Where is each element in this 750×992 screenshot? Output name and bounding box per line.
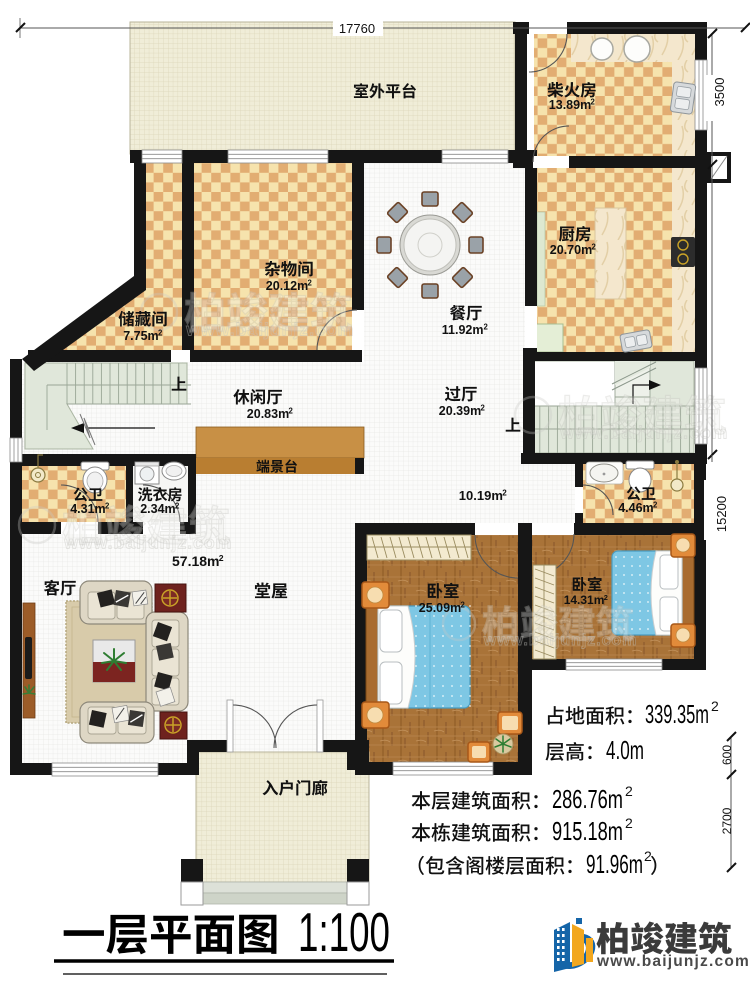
svg-text:2: 2 (481, 404, 486, 413)
svg-text:14.31m: 14.31m (564, 593, 605, 607)
svg-text:1:100: 1:100 (298, 901, 390, 963)
svg-text:2: 2 (644, 848, 652, 864)
svg-text:339.35m: 339.35m (645, 699, 709, 729)
svg-text:20.39m: 20.39m (439, 404, 481, 418)
svg-text:2: 2 (604, 593, 608, 602)
svg-text:20.83m: 20.83m (247, 407, 289, 421)
svg-text:600: 600 (720, 745, 734, 765)
svg-text:2: 2 (158, 329, 163, 338)
svg-text:2700: 2700 (720, 807, 734, 834)
svg-text:91.96m: 91.96m (586, 849, 643, 879)
svg-text:13.89m: 13.89m (549, 98, 591, 112)
svg-text:11.92m: 11.92m (442, 323, 484, 337)
svg-text:www.baijunjz.com: www.baijunjz.com (596, 953, 750, 970)
svg-text:15200: 15200 (714, 496, 729, 532)
svg-text:286.76m: 286.76m (552, 784, 623, 814)
svg-text:2: 2 (461, 601, 466, 610)
svg-text:915.18m: 915.18m (552, 816, 623, 846)
svg-text:2: 2 (592, 243, 597, 252)
svg-text:www.baijunjz.com: www.baijunjz.com (483, 632, 638, 649)
svg-text:4.0m: 4.0m (606, 735, 644, 765)
svg-text:www.baijunjz.com: www.baijunjz.com (63, 533, 232, 553)
svg-text:2: 2 (105, 502, 110, 511)
svg-text:20.12m: 20.12m (266, 279, 308, 293)
svg-text:25.09m: 25.09m (419, 601, 461, 615)
svg-text:2.34m: 2.34m (140, 502, 175, 516)
svg-text:2: 2 (219, 553, 224, 563)
svg-text:www.baijunjz.com: www.baijunjz.com (559, 423, 728, 443)
svg-text:17760: 17760 (339, 21, 375, 36)
svg-text:2: 2 (502, 488, 507, 497)
svg-text:www.baijunjz.com: www.baijunjz.com (185, 320, 354, 340)
svg-text:2: 2 (484, 323, 489, 332)
svg-text:2: 2 (591, 98, 596, 107)
svg-text:20.70m: 20.70m (550, 243, 592, 257)
svg-text:2: 2 (175, 502, 180, 511)
svg-text:4.31m: 4.31m (70, 502, 105, 516)
svg-text:2: 2 (289, 407, 294, 416)
svg-text:2: 2 (653, 501, 658, 510)
svg-text:10.19m: 10.19m (459, 488, 503, 503)
svg-text:4.46m: 4.46m (618, 501, 653, 515)
svg-text:57.18m: 57.18m (172, 553, 219, 569)
svg-text:3500: 3500 (712, 78, 727, 107)
svg-text:7.75m: 7.75m (123, 329, 158, 343)
svg-text:2: 2 (625, 815, 633, 831)
svg-text:2: 2 (308, 279, 313, 288)
svg-text:2: 2 (711, 698, 719, 714)
svg-text:2: 2 (625, 783, 633, 799)
